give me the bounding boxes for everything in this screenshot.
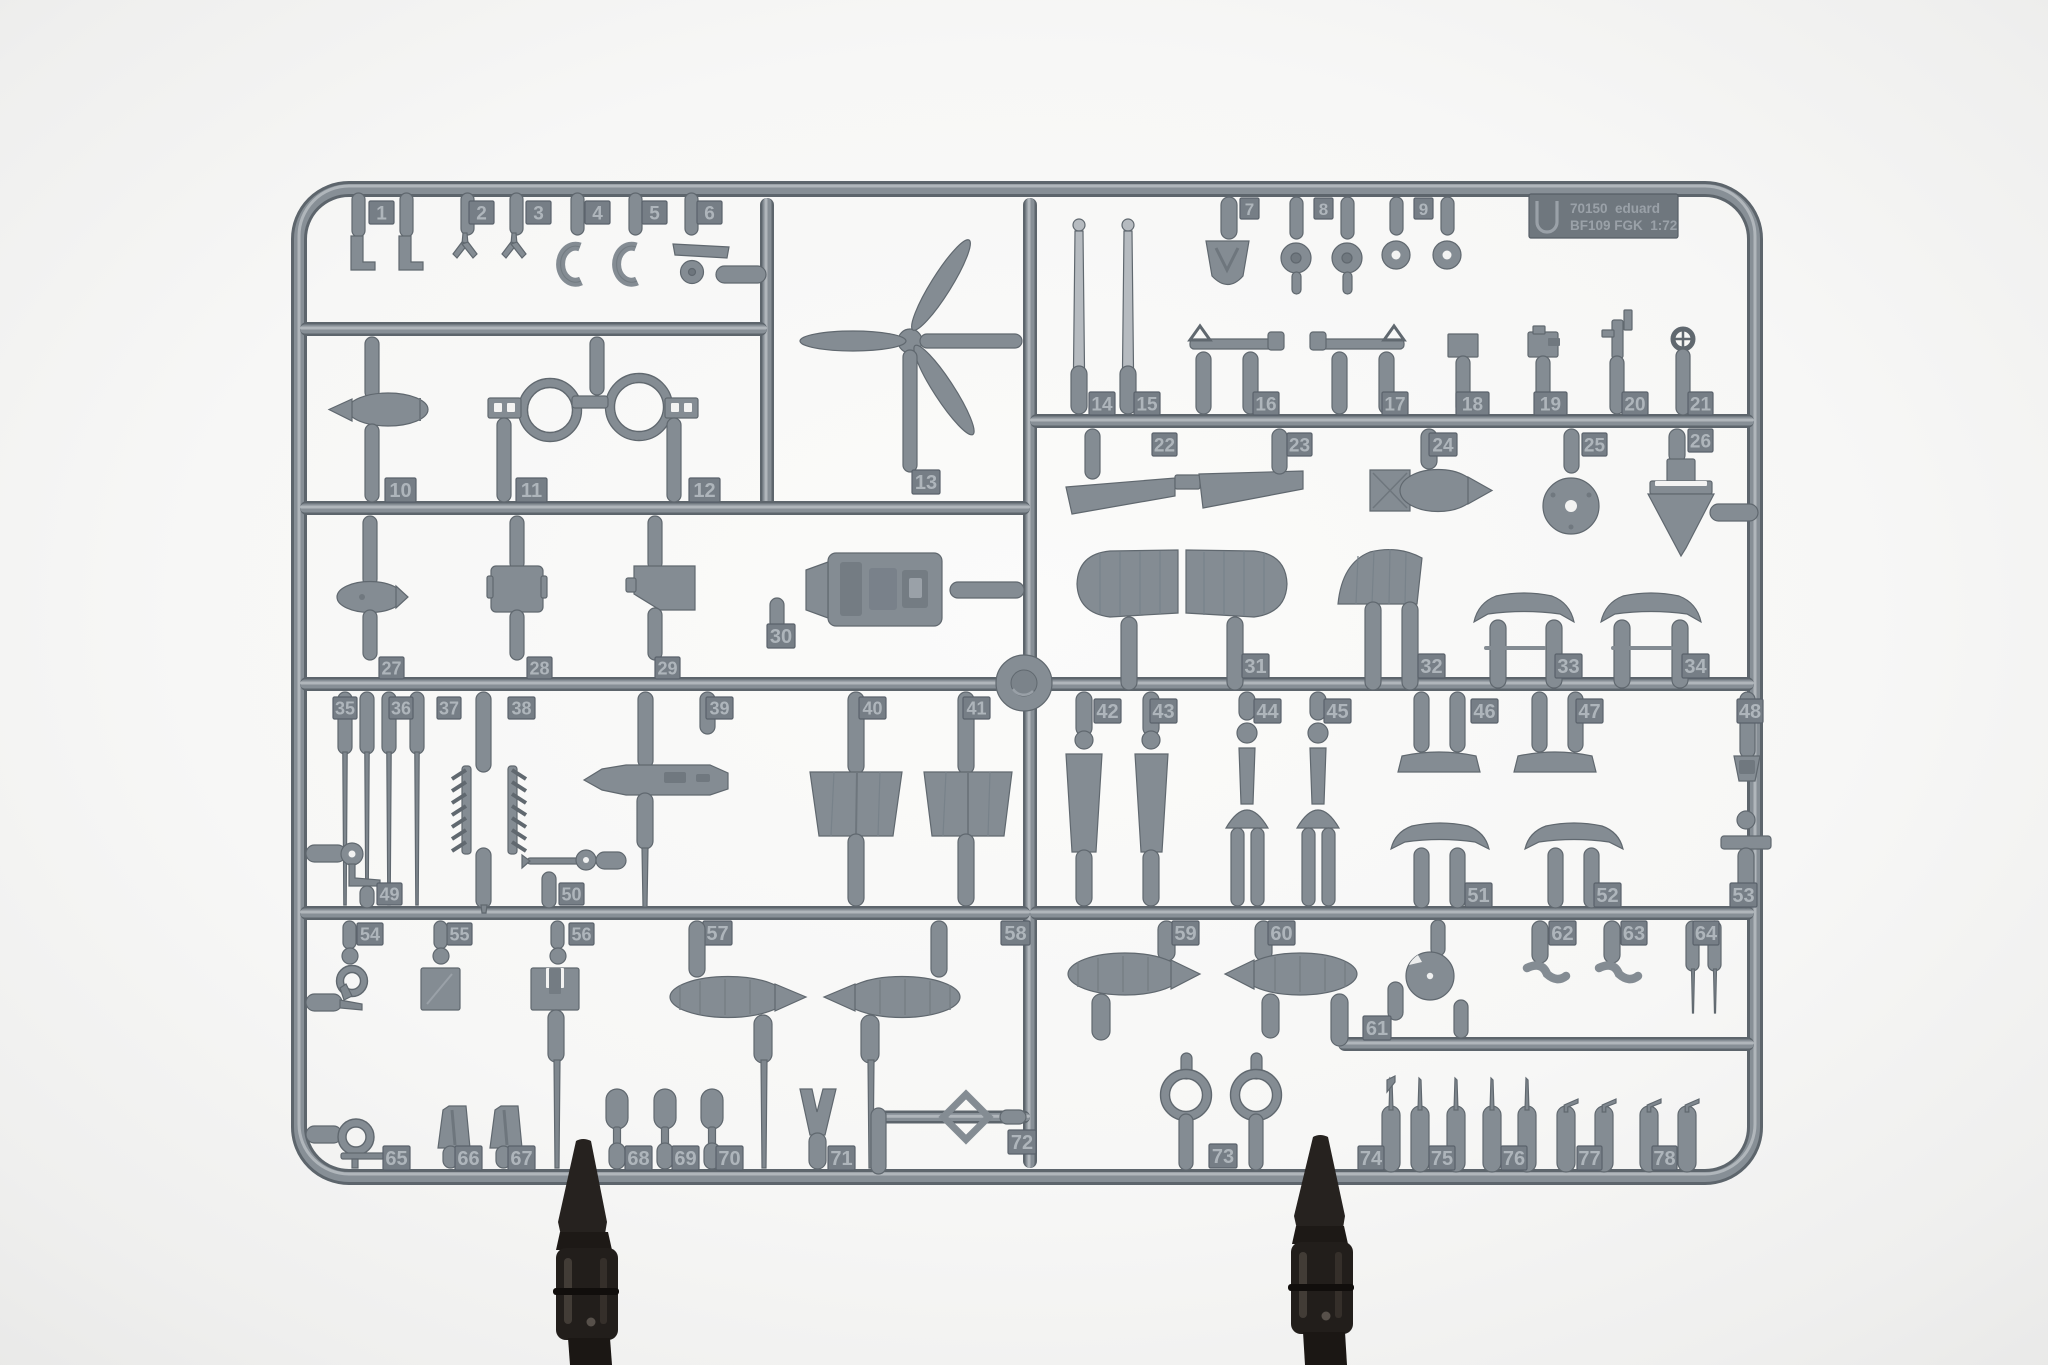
svg-text:65: 65	[385, 1148, 407, 1170]
svg-text:19: 19	[1540, 394, 1561, 415]
svg-text:70: 70	[718, 1148, 740, 1170]
svg-text:43: 43	[1152, 701, 1174, 723]
svg-text:45: 45	[1326, 701, 1348, 723]
svg-text:40: 40	[862, 699, 882, 719]
svg-text:28: 28	[529, 659, 549, 679]
svg-text:26: 26	[1690, 431, 1711, 452]
svg-text:56: 56	[571, 925, 591, 945]
svg-text:64: 64	[1695, 923, 1718, 945]
svg-text:35: 35	[335, 699, 355, 719]
svg-text:72: 72	[1011, 1132, 1033, 1154]
svg-text:74: 74	[1360, 1148, 1383, 1170]
svg-text:18: 18	[1462, 394, 1483, 415]
svg-text:68: 68	[627, 1148, 649, 1170]
svg-text:52: 52	[1596, 885, 1618, 907]
svg-text:33: 33	[1557, 656, 1579, 678]
svg-text:46: 46	[1473, 701, 1495, 723]
svg-text:8: 8	[1319, 200, 1328, 219]
svg-text:70150 eduard: 70150 eduard	[1570, 201, 1660, 216]
svg-text:41: 41	[966, 699, 986, 719]
svg-text:34: 34	[1684, 656, 1707, 678]
svg-text:77: 77	[1578, 1148, 1600, 1170]
svg-text:60: 60	[1270, 923, 1292, 945]
svg-text:36: 36	[391, 699, 411, 719]
svg-text:37: 37	[439, 699, 459, 719]
svg-text:44: 44	[1256, 701, 1279, 723]
svg-text:1: 1	[376, 203, 387, 224]
svg-text:51: 51	[1467, 885, 1489, 907]
svg-text:73: 73	[1212, 1146, 1234, 1168]
svg-text:27: 27	[381, 659, 401, 679]
svg-text:2: 2	[476, 203, 487, 224]
svg-text:32: 32	[1420, 656, 1442, 678]
svg-text:47: 47	[1578, 701, 1600, 723]
svg-text:29: 29	[657, 659, 677, 679]
svg-text:63: 63	[1623, 923, 1645, 945]
svg-text:22: 22	[1154, 435, 1175, 456]
svg-text:12: 12	[693, 480, 715, 502]
svg-text:11: 11	[521, 480, 542, 502]
svg-text:61: 61	[1366, 1018, 1388, 1040]
svg-text:30: 30	[770, 626, 792, 648]
svg-text:5: 5	[649, 203, 660, 224]
svg-text:13: 13	[915, 472, 937, 494]
svg-text:24: 24	[1432, 435, 1454, 456]
svg-text:71: 71	[830, 1148, 852, 1170]
svg-text:38: 38	[511, 699, 531, 719]
svg-text:20: 20	[1624, 394, 1645, 415]
svg-text:66: 66	[457, 1148, 479, 1170]
svg-text:58: 58	[1004, 923, 1026, 945]
svg-text:42: 42	[1096, 701, 1118, 723]
svg-text:50: 50	[561, 885, 581, 905]
svg-text:16: 16	[1255, 394, 1276, 415]
svg-text:7: 7	[1245, 200, 1254, 219]
svg-text:49: 49	[379, 885, 399, 905]
svg-text:55: 55	[449, 925, 469, 945]
svg-text:57: 57	[706, 923, 728, 945]
svg-text:10: 10	[389, 480, 411, 502]
svg-text:3: 3	[533, 203, 544, 224]
svg-text:48: 48	[1739, 701, 1761, 723]
svg-text:25: 25	[1584, 435, 1606, 456]
svg-text:23: 23	[1289, 435, 1310, 456]
svg-text:31: 31	[1244, 656, 1266, 678]
svg-text:76: 76	[1503, 1148, 1525, 1170]
svg-text:78: 78	[1653, 1148, 1675, 1170]
svg-text:69: 69	[674, 1148, 696, 1170]
svg-text:53: 53	[1732, 885, 1754, 907]
svg-text:62: 62	[1551, 923, 1573, 945]
svg-text:17: 17	[1384, 394, 1405, 415]
svg-text:21: 21	[1690, 394, 1712, 415]
svg-text:6: 6	[704, 203, 715, 224]
svg-text:39: 39	[709, 699, 729, 719]
svg-text:9: 9	[1419, 200, 1428, 219]
svg-text:BF109 FGK 1:72: BF109 FGK 1:72	[1570, 218, 1677, 233]
svg-text:67: 67	[510, 1148, 532, 1170]
svg-text:14: 14	[1091, 394, 1113, 415]
svg-text:54: 54	[360, 925, 380, 945]
svg-text:75: 75	[1431, 1148, 1453, 1170]
svg-text:59: 59	[1174, 923, 1196, 945]
svg-text:15: 15	[1136, 394, 1158, 415]
svg-text:4: 4	[592, 203, 603, 224]
